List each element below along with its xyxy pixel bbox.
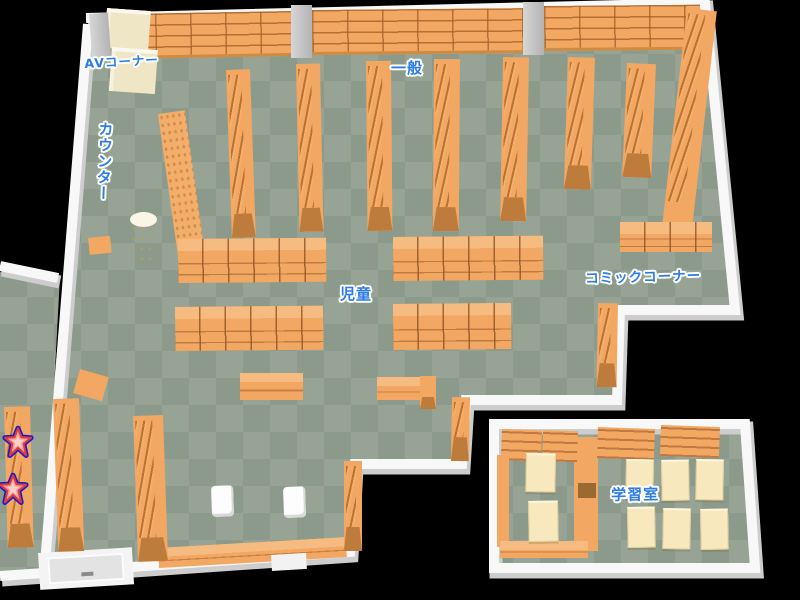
av-corner-booth — [104, 8, 151, 51]
area-label-comic-corner: コミックコーナー — [585, 268, 701, 288]
study-table — [525, 453, 556, 493]
study-side-shelf — [497, 455, 509, 547]
low-shelf — [393, 303, 511, 350]
wall-gap — [271, 553, 307, 571]
entrance-door — [38, 547, 134, 590]
bookshelf-column — [451, 397, 470, 461]
low-shelf — [240, 373, 303, 400]
bookshelf-column — [53, 398, 84, 552]
support-pillar — [523, 2, 544, 55]
bookshelf-column — [296, 63, 324, 231]
book-display-cylinder — [130, 214, 157, 262]
bookshelf-column — [564, 57, 595, 190]
bookshelf-column — [500, 57, 529, 221]
bookshelf-column — [366, 61, 392, 231]
floor-kiosk — [283, 486, 306, 518]
library-floor-map: AVコーナー 一般 カウンター 児童 コミックコーナー 学習室 — [0, 0, 800, 600]
study-table — [662, 508, 691, 549]
star-marker — [3, 426, 33, 458]
study-table — [695, 459, 724, 500]
low-shelf — [393, 236, 543, 281]
area-label-study-room: 学習室 — [611, 485, 659, 505]
bookshelf-column — [344, 461, 362, 551]
low-shelf — [178, 238, 326, 283]
entrance-door-recess — [47, 553, 125, 585]
study-table — [661, 460, 690, 501]
study-wall-shelf — [597, 427, 655, 460]
top-wall-shelf — [312, 8, 526, 55]
study-table — [627, 507, 656, 548]
mini-shelf — [420, 376, 436, 409]
area-label-general: 一般 — [391, 59, 423, 78]
study-wall-shelf — [660, 425, 720, 458]
study-table — [528, 500, 559, 542]
star-marker — [0, 473, 28, 505]
comic-shelf — [620, 222, 712, 252]
av-corner-pillar — [89, 13, 111, 59]
door-handle — [81, 572, 93, 577]
divider-notch — [578, 483, 596, 498]
low-shelf — [175, 306, 323, 351]
study-bottom-shelf — [500, 541, 588, 558]
study-table — [700, 509, 729, 550]
bookshelf-column — [133, 415, 168, 562]
support-pillar — [291, 5, 312, 58]
floor-kiosk — [211, 485, 234, 517]
bookshelf-column — [597, 303, 618, 387]
area-label-children: 児童 — [340, 285, 372, 304]
top-wall-shelf — [544, 5, 700, 51]
bookshelf-column — [433, 59, 460, 231]
bookshelf-column — [622, 63, 656, 178]
